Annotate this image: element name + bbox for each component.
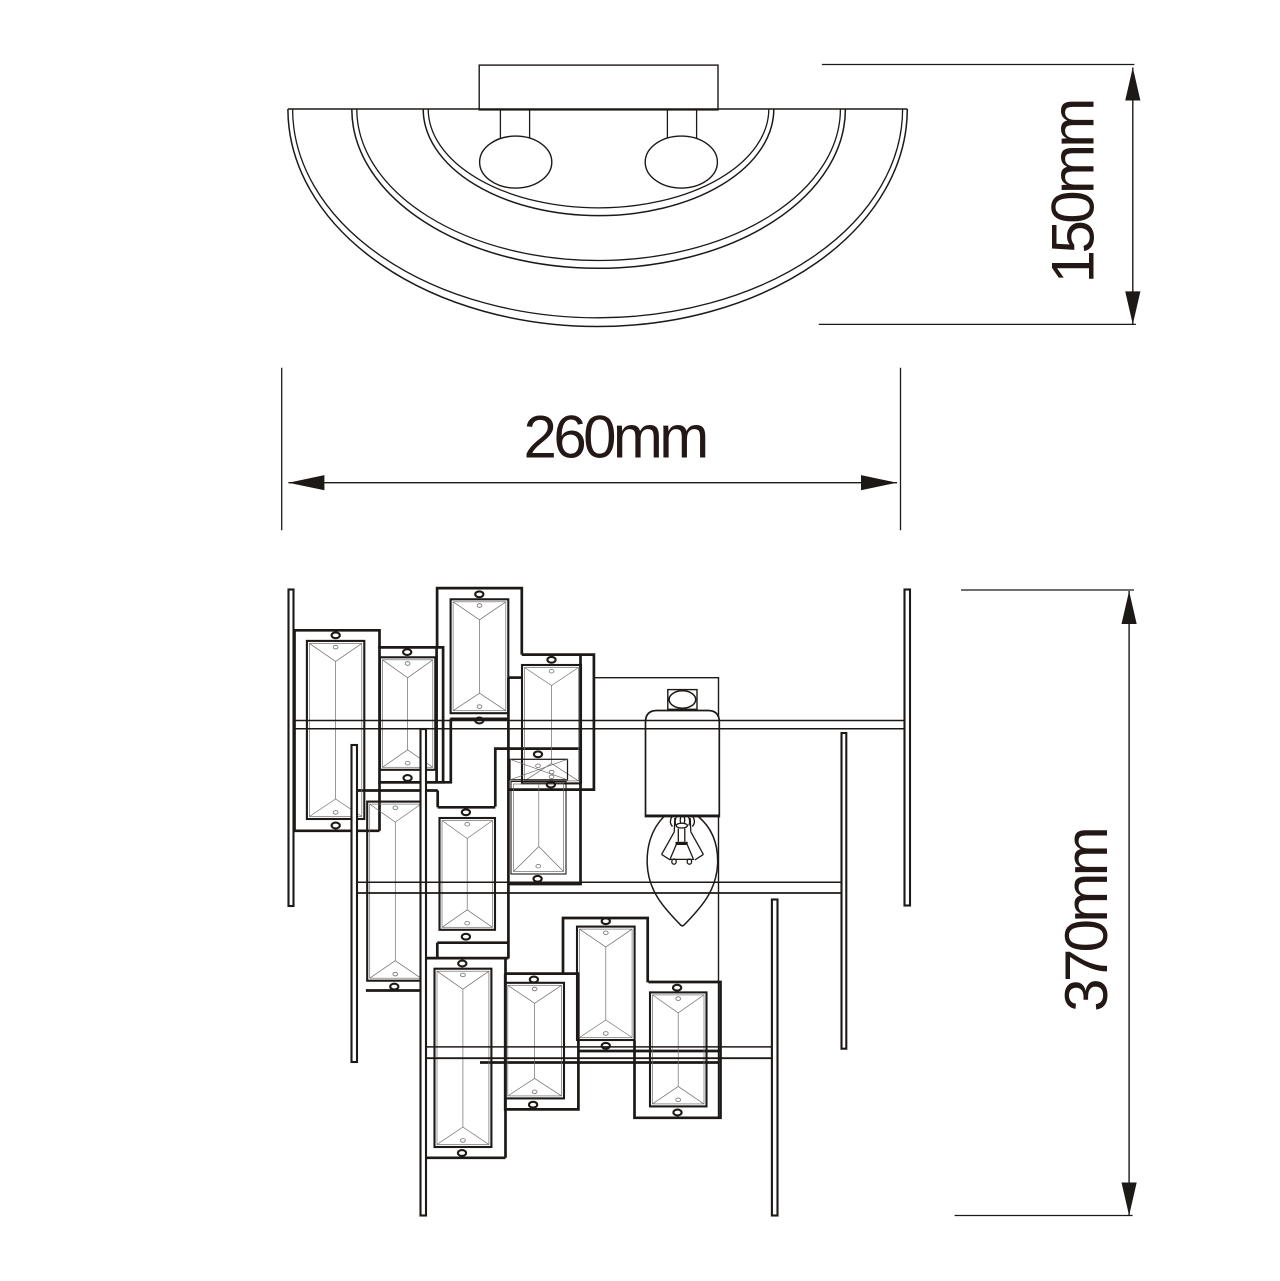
svg-text:260mm: 260mm xyxy=(524,404,707,471)
svg-text:150mm: 150mm xyxy=(1040,101,1107,284)
svg-text:370mm: 370mm xyxy=(1053,829,1120,1012)
